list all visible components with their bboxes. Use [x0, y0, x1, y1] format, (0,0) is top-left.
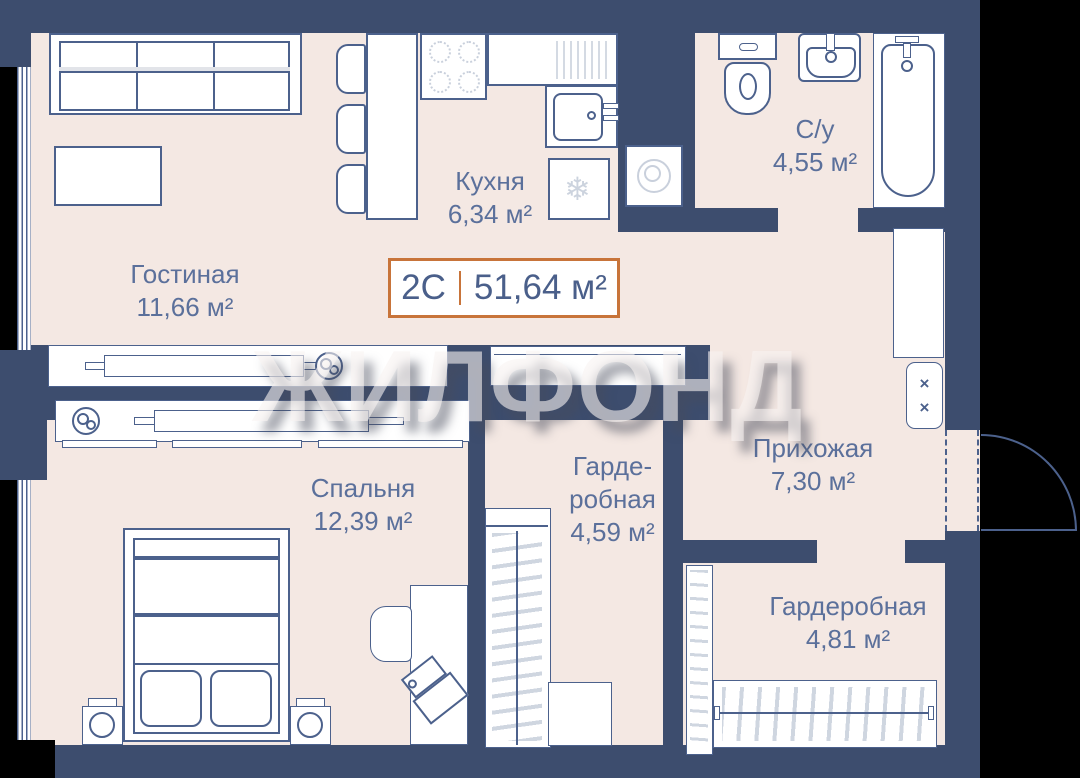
plan-corner-cutout [17, 740, 55, 778]
desk-chair [370, 606, 412, 662]
dish-rack [556, 41, 610, 79]
watermark: ЖИЛФОНД [252, 330, 803, 445]
bath-faucet-bar [895, 36, 919, 43]
bar-chair [336, 44, 366, 94]
bath-drain [901, 60, 913, 72]
burner-icon [429, 71, 451, 93]
spiral-inner [644, 165, 661, 182]
sink-drain [587, 111, 596, 120]
sofa [49, 33, 302, 115]
burner-icon [458, 41, 480, 63]
wardrobe-rack-vertical [485, 508, 551, 748]
bed-footboard [133, 538, 280, 558]
plan-type: 2С [401, 268, 446, 308]
hanger-rail [516, 531, 518, 745]
hall-cabinet [893, 228, 944, 358]
room-area: 11,66 м² [80, 291, 290, 324]
plant-leaf [86, 420, 96, 430]
window-living [17, 67, 31, 350]
rack-shelf-line [486, 525, 548, 527]
wall-left-middle [0, 350, 47, 480]
burner-icon [458, 71, 480, 93]
nightstand [82, 706, 123, 745]
hanger-rail [718, 712, 932, 714]
faucet-base [825, 51, 837, 63]
entrance-door-jamb [945, 430, 947, 531]
rail-end [714, 706, 720, 720]
vent-cross-icon: × [920, 375, 930, 392]
plan-badge: 2С 51,64 м² [388, 258, 620, 318]
wall-wardrobe-large-top-right [905, 540, 945, 563]
sofa-seat-cushions [59, 71, 290, 111]
room-name: Спальня [278, 472, 448, 505]
room-name: Гарде- [545, 450, 680, 483]
bar-chair [336, 164, 366, 214]
room-area: 4,55 м² [740, 146, 890, 179]
stove [420, 33, 487, 100]
wall-right-upper [945, 0, 980, 430]
room-name: Кухня [400, 165, 580, 198]
floor-plan: ❄ [0, 0, 1080, 778]
console-base [62, 440, 157, 448]
wall-wardrobe-large-top-left [695, 540, 817, 563]
flush-button [739, 43, 758, 51]
plant-icon [72, 407, 100, 435]
wall-bathroom-bottom-left [618, 208, 778, 232]
bar-chair [336, 104, 366, 154]
wardrobe-rack-side [686, 565, 713, 755]
kitchen-counter [487, 33, 618, 86]
coffee-table [54, 146, 162, 206]
faucet-handle [603, 115, 619, 121]
toilet-bowl-inner [739, 73, 757, 100]
wall-bedroom-wardrobe [468, 508, 485, 745]
wall-top [0, 0, 980, 33]
bed-blanket [133, 615, 280, 665]
nightstand [290, 706, 331, 745]
faucet [826, 33, 835, 51]
toilet-bowl [724, 62, 771, 115]
lamp-icon [297, 712, 323, 738]
wardrobe-dresser [548, 682, 612, 746]
plan-total-area: 51,64 м² [474, 268, 607, 308]
floor-wardrobe-door-gap [817, 540, 905, 563]
bath-faucet-stem [903, 43, 911, 58]
bathroom-sink [798, 33, 861, 82]
pillow [140, 670, 202, 727]
washing-machine [625, 145, 683, 207]
wardrobe-rack-bottom [713, 680, 937, 748]
toilet-tank [718, 33, 777, 60]
burner-icon [429, 41, 451, 63]
room-label-bathroom: С/у 4,55 м² [740, 113, 890, 179]
room-name: Гардеробная [738, 590, 958, 623]
window-bedroom [17, 480, 31, 740]
spiral-icon [637, 159, 671, 193]
room-area: 6,34 м² [400, 198, 580, 231]
bed [123, 528, 290, 742]
faucet-handle [603, 103, 619, 109]
room-label-kitchen: Кухня 6,34 м² [400, 165, 580, 231]
pillow [210, 670, 272, 727]
room-label-bedroom: Спальня 12,39 м² [278, 472, 448, 538]
entrance-door-jamb [977, 430, 979, 531]
wall-top-left-cap [0, 33, 30, 67]
wall-bottom [55, 745, 980, 778]
room-area: 12,39 м² [278, 505, 448, 538]
vent-cross-icon: × [920, 399, 930, 416]
hanger-bars [690, 570, 708, 748]
room-label-wardrobe-small: Гарде- робная 4,59 м² [545, 450, 680, 549]
sofa-back-cushions [59, 41, 290, 69]
room-area: 4,59 м² [545, 516, 680, 549]
floor-entrance-opening [945, 430, 980, 531]
kitchen-sink-unit [545, 85, 618, 148]
badge-divider [459, 271, 461, 305]
floor-bathroom-door-gap [778, 208, 858, 232]
wall-kitchen-bathroom [618, 33, 695, 145]
lamp-icon [89, 712, 115, 738]
room-name: С/у [740, 113, 890, 146]
rail-end [928, 706, 934, 720]
room-label-living: Гостиная 11,66 м² [80, 258, 290, 324]
room-label-wardrobe-large: Гардеробная 4,81 м² [738, 590, 958, 656]
room-name: робная [545, 483, 680, 516]
door-swing-arc [981, 434, 1077, 531]
vent-shaft: × × [906, 362, 943, 429]
room-area: 4,81 м² [738, 623, 958, 656]
bed-blanket [133, 558, 280, 615]
hanger-bars [722, 687, 928, 741]
room-name: Гостиная [80, 258, 290, 291]
room-area: 7,30 м² [718, 465, 908, 498]
